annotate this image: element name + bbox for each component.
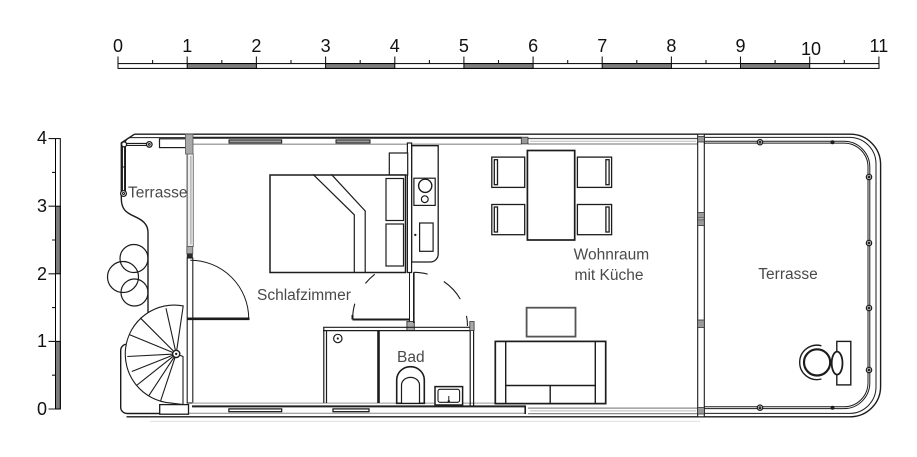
svg-text:10: 10 [801,39,821,59]
svg-text:8: 8 [666,36,676,56]
svg-text:0: 0 [37,399,47,419]
svg-text:mit Küche: mit Küche [575,267,644,284]
svg-text:5: 5 [459,36,469,56]
svg-text:4: 4 [37,128,47,148]
svg-text:4: 4 [390,36,400,56]
svg-text:Bad: Bad [397,349,425,366]
svg-text:7: 7 [597,36,607,56]
svg-text:0: 0 [113,36,123,56]
svg-text:3: 3 [37,196,47,216]
svg-text:Wohnraum: Wohnraum [574,247,650,264]
svg-text:1: 1 [37,331,47,351]
svg-text:9: 9 [735,36,745,56]
svg-text:2: 2 [37,264,47,284]
svg-text:Schlafzimmer: Schlafzimmer [257,287,351,304]
svg-text:11: 11 [870,36,889,56]
svg-text:Terrasse: Terrasse [128,185,187,202]
svg-text:Terrasse: Terrasse [758,266,817,283]
svg-text:6: 6 [528,36,538,56]
svg-text:2: 2 [251,36,261,56]
svg-text:1: 1 [182,36,192,56]
svg-text:3: 3 [321,36,331,56]
